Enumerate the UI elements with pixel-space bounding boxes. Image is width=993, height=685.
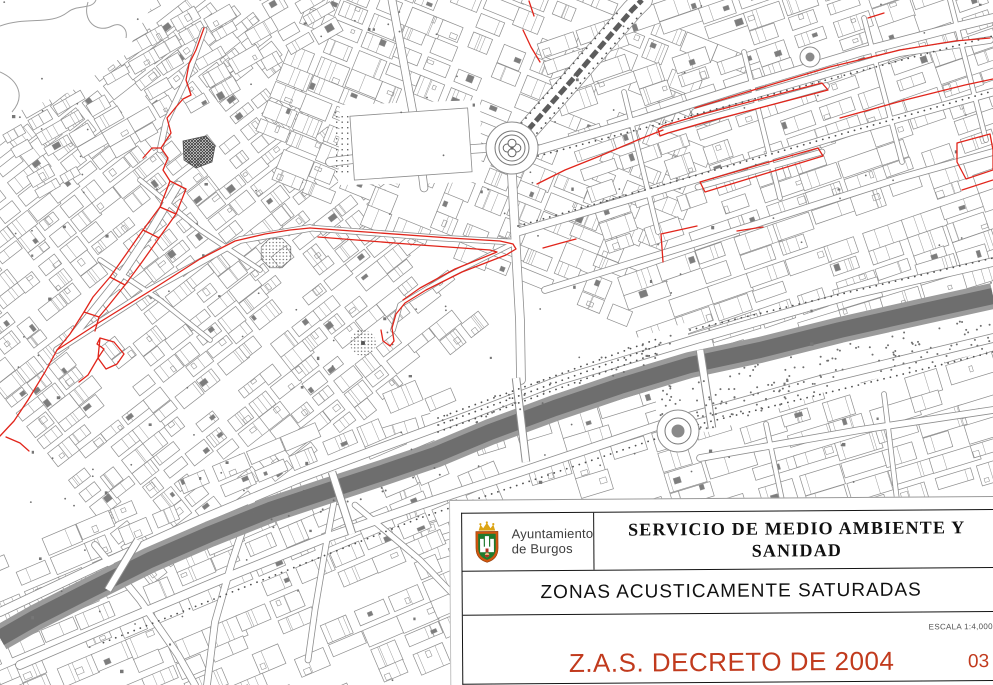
map-subtitle: ZONAS ACUSTICAMENTE SATURADAS	[463, 569, 993, 616]
sheet-title: Z.A.S. DECRETO DE 2004	[463, 645, 993, 680]
title-block: Ayuntamiento de Burgos SERVICIO DE MEDIO…	[461, 509, 993, 685]
organization-name-line1: Ayuntamiento	[512, 527, 594, 542]
roundabout	[486, 122, 538, 174]
title-block-footer-row: ESCALA 1:4,000 Z.A.S. DECRETO DE 2004 03	[463, 612, 993, 684]
scale-label: ESCALA 1:4,000	[929, 622, 993, 631]
roundabout	[800, 47, 820, 67]
plaza-mayor-octagon	[261, 238, 291, 268]
department-title: SERVICIO DE MEDIO AMBIENTE Y SANIDAD	[594, 510, 993, 570]
organization-name: Ayuntamiento de Burgos	[512, 527, 594, 557]
sheet-number: 03	[968, 651, 989, 673]
plaza-espana	[350, 108, 472, 180]
title-block-sheet: Ayuntamiento de Burgos SERVICIO DE MEDIO…	[449, 496, 993, 685]
roundabout	[657, 410, 699, 452]
title-block-header-row: Ayuntamiento de Burgos SERVICIO DE MEDIO…	[462, 510, 993, 572]
logo-cell: Ayuntamiento de Burgos	[462, 513, 594, 571]
zas-map-page: Ayuntamiento de Burgos SERVICIO DE MEDIO…	[0, 0, 993, 685]
burgos-coat-of-arms-icon	[471, 518, 503, 566]
organization-name-line2: de Burgos	[512, 541, 594, 556]
